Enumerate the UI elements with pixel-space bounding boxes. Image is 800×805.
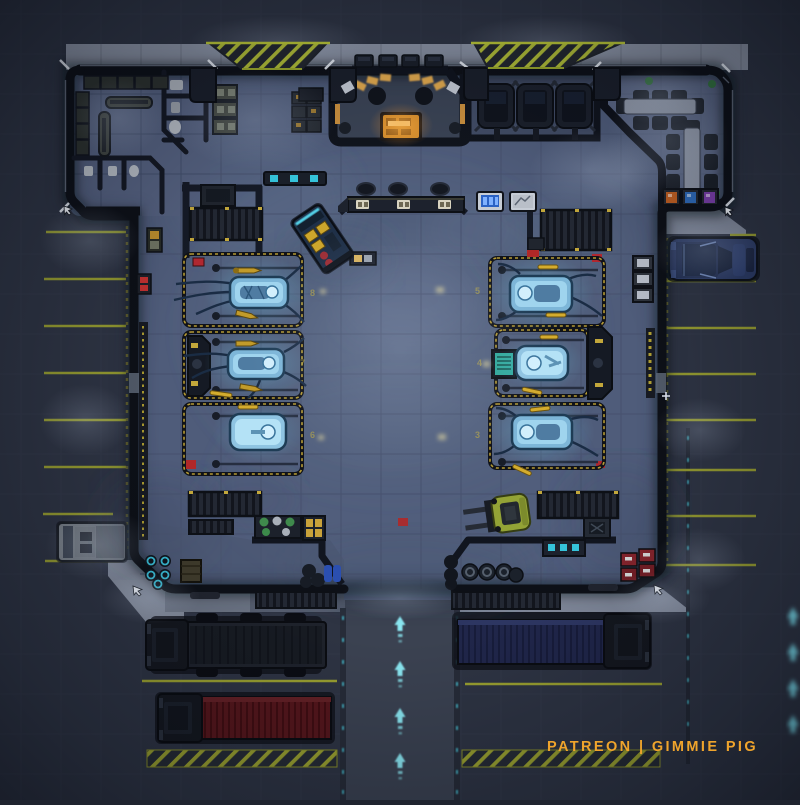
svg-text:PATREON | GIMMIE PIG: PATREON | GIMMIE PIG bbox=[547, 739, 758, 755]
